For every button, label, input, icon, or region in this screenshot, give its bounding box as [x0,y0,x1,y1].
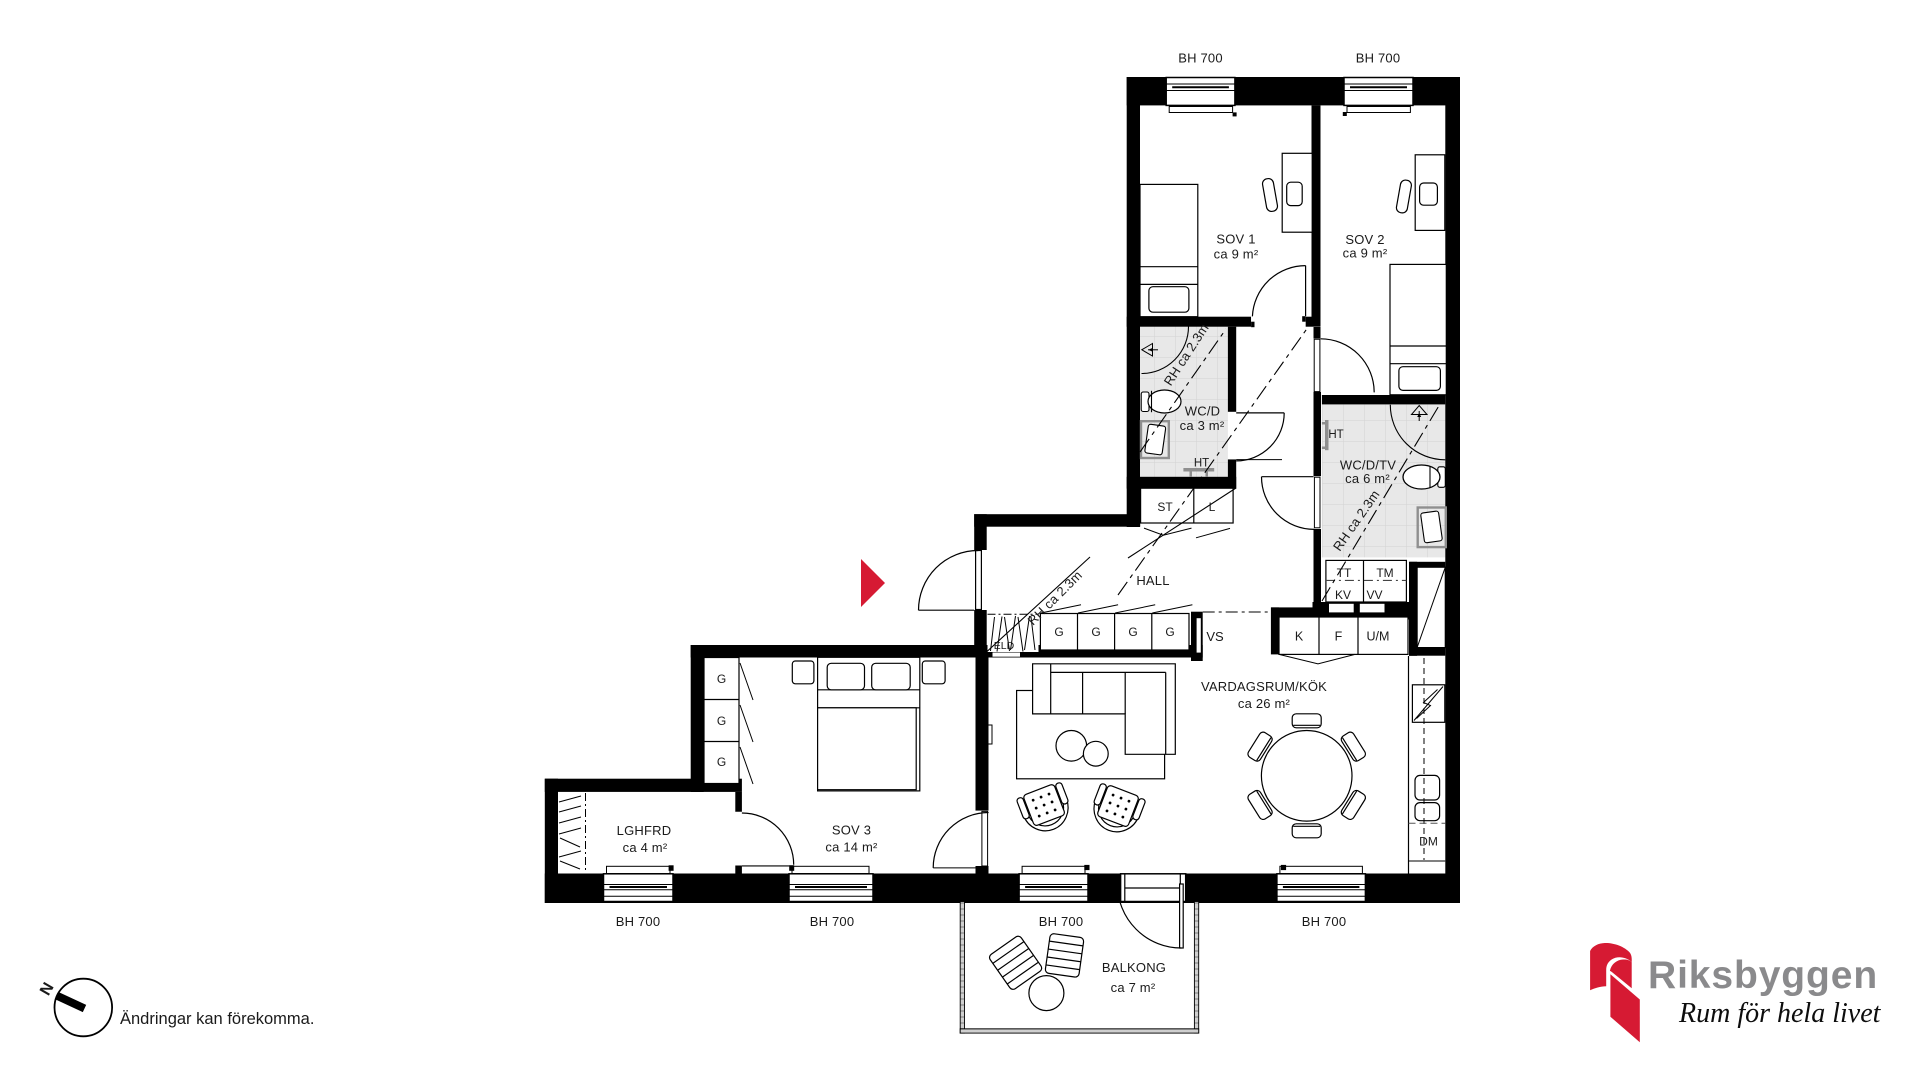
svg-text:BH 700: BH 700 [1302,914,1347,929]
svg-text:G: G [1054,625,1063,639]
svg-text:ca 3 m²: ca 3 m² [1180,418,1225,433]
svg-text:KV: KV [1335,588,1351,602]
svg-text:DM: DM [1419,835,1438,849]
svg-text:Riksbyggen: Riksbyggen [1648,954,1878,997]
svg-text:ST: ST [1157,500,1173,514]
svg-text:ca 26 m²: ca 26 m² [1238,696,1291,711]
svg-text:VS: VS [1206,629,1224,644]
svg-text:F: F [1335,630,1343,644]
svg-text:ca 6 m²: ca 6 m² [1345,471,1390,486]
svg-text:SOV 3: SOV 3 [832,823,871,838]
svg-text:ELD: ELD [994,640,1015,652]
svg-text:BH 700: BH 700 [810,914,855,929]
svg-text:ca 9 m²: ca 9 m² [1343,246,1388,261]
svg-text:G: G [1128,625,1137,639]
svg-text:BH 700: BH 700 [1178,51,1223,66]
svg-text:G: G [1091,625,1100,639]
svg-text:G: G [717,672,726,686]
svg-text:Rum för hela livet: Rum för hela livet [1678,998,1882,1029]
svg-text:Ändringar kan förekomma.: Ändringar kan förekomma. [120,1010,314,1028]
svg-text:LGHFRD: LGHFRD [617,823,672,838]
svg-text:K: K [1295,630,1304,644]
svg-text:HALL: HALL [1136,573,1169,588]
svg-text:TM: TM [1376,566,1393,580]
svg-text:TT: TT [1337,566,1352,580]
svg-text:BH 700: BH 700 [1039,914,1084,929]
svg-text:U/M: U/M [1367,630,1390,644]
svg-text:HT: HT [1328,429,1343,441]
svg-text:VV: VV [1366,588,1382,602]
svg-text:BH 700: BH 700 [616,914,661,929]
svg-text:ca 9 m²: ca 9 m² [1214,247,1259,262]
svg-text:ca 7 m²: ca 7 m² [1111,980,1156,995]
svg-text:ca 4 m²: ca 4 m² [623,840,668,855]
svg-text:L: L [1209,500,1216,514]
svg-text:G: G [717,714,726,728]
svg-text:WC/D: WC/D [1185,404,1220,419]
svg-text:SOV 1: SOV 1 [1216,232,1255,247]
svg-text:G: G [1165,625,1174,639]
svg-text:BALKONG: BALKONG [1102,960,1166,975]
svg-text:G: G [717,755,726,769]
svg-text:VARDAGSRUM/KÖK: VARDAGSRUM/KÖK [1201,679,1327,694]
svg-text:HT: HT [1194,458,1209,470]
svg-text:ca 14 m²: ca 14 m² [825,840,878,855]
svg-text:BH 700: BH 700 [1356,51,1401,66]
